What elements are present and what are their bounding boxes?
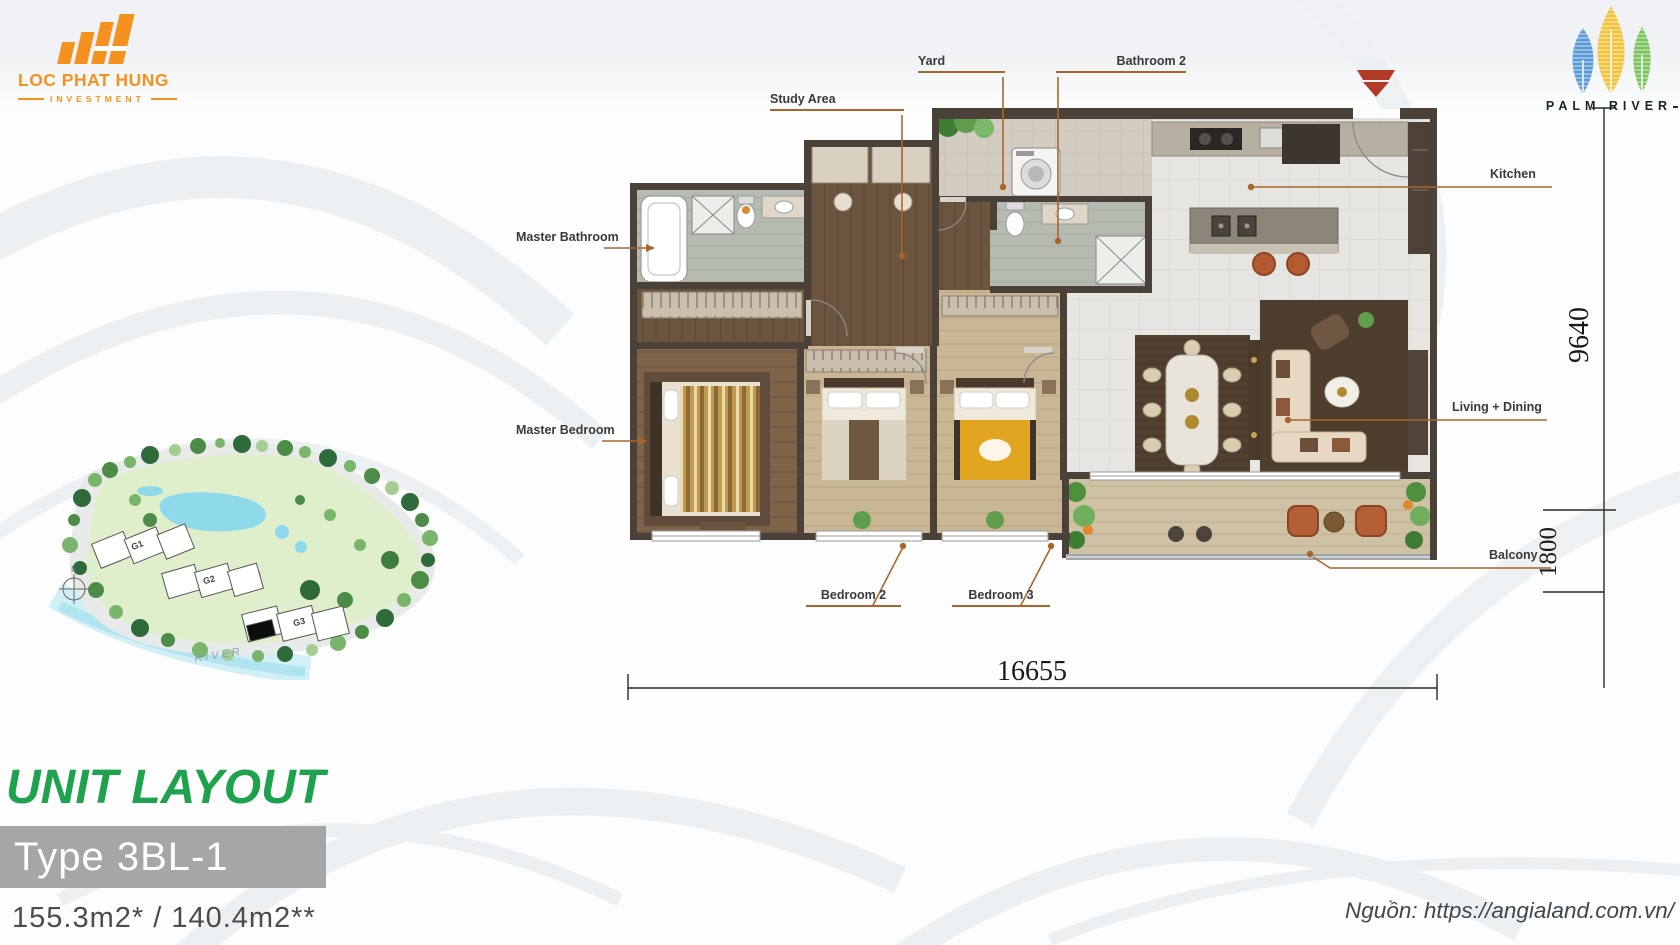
label-balcony: Balcony (1489, 548, 1538, 562)
label-bathroom-2: Bathroom 2 (1056, 54, 1186, 73)
compass-n: N (71, 565, 77, 574)
tree-icon (233, 435, 251, 453)
tree-icon (319, 449, 337, 467)
tree-icon (295, 495, 305, 505)
project-logo-icon (1535, 0, 1680, 100)
label-master-bedroom: Master Bedroom (516, 423, 615, 437)
tree-icon (401, 493, 419, 511)
tree-icon (252, 650, 264, 662)
subtitle-dash-left (18, 98, 44, 100)
tree-icon (73, 489, 91, 507)
source-credit: Nguồn: https://angialand.com.vn/ (1345, 898, 1674, 924)
tree-icon (381, 551, 399, 569)
tree-icon (337, 592, 353, 608)
label-living-dining: Living + Dining (1452, 400, 1542, 414)
palm-leaves-icon (1572, 6, 1650, 94)
tree-icon (169, 444, 181, 456)
dim-balcony-depth: 1800 (1535, 527, 1562, 577)
tree-icon (397, 593, 411, 607)
tree-icon (299, 446, 311, 458)
developer-subtitle: INVESTMENT (50, 94, 145, 104)
tree-icon (277, 646, 293, 662)
tree-icon (277, 440, 293, 456)
tree-icon (161, 633, 175, 647)
dim-width: 16655 (997, 656, 1067, 687)
unit-area: 155.3m2* / 140.4m2** (12, 902, 316, 935)
tree-icon (415, 513, 429, 527)
developer-logo: LOC PHAT HUNG INVESTMENT (18, 8, 188, 104)
unit-type-badge: Type 3BL-1 (0, 826, 326, 888)
dim-depth: 9640 (1564, 307, 1595, 363)
floor-plan-rendering: 16655 9640 1800 (440, 40, 1680, 700)
site-plan-map: G1 G2 G3 N RIVER (30, 415, 460, 680)
label-bedroom-3: Bedroom 3 (952, 588, 1050, 607)
label-master-bathroom: Master Bathroom (516, 230, 619, 244)
tree-icon (376, 609, 394, 627)
tree-icon (88, 473, 102, 487)
tree-icon (68, 514, 80, 526)
label-yard: Yard (918, 54, 1005, 73)
tree-icon (422, 530, 438, 546)
tree-icon (364, 468, 380, 484)
tree-icon (190, 438, 206, 454)
subtitle-dash-right (151, 98, 177, 100)
tree-icon (354, 539, 366, 551)
unit-type-text: Type 3BL-1 (0, 826, 326, 888)
tree-icon (215, 438, 225, 448)
developer-name: LOC PHAT HUNG (18, 70, 188, 91)
tree-icon (344, 460, 356, 472)
tree-icon (143, 513, 157, 527)
tree-icon (411, 571, 429, 589)
tree-icon (300, 580, 320, 600)
tree-icon (109, 605, 123, 619)
tree-icon (355, 625, 369, 639)
tree-icon (385, 481, 399, 495)
tree-icon (129, 494, 141, 506)
tree-icon (141, 446, 159, 464)
developer-subtitle-row: INVESTMENT (18, 94, 188, 104)
page-title: UNIT LAYOUT (6, 760, 325, 815)
tree-icon (131, 619, 149, 637)
tree-icon (324, 509, 336, 521)
tree-icon (421, 553, 435, 567)
developer-logo-icon (18, 8, 188, 70)
tree-icon (102, 462, 118, 478)
tree-icon (124, 456, 136, 468)
tree-icon (306, 644, 318, 656)
label-bedroom-2: Bedroom 2 (806, 588, 901, 607)
tree-icon (88, 582, 104, 598)
label-study-area: Study Area (770, 92, 904, 111)
slide: LOC PHAT HUNG INVESTMENT PALM RIVER (0, 0, 1680, 945)
label-kitchen: Kitchen (1490, 167, 1536, 181)
tree-icon (62, 537, 78, 553)
entry-arrow-icon (1357, 70, 1395, 97)
tree-icon (256, 440, 268, 452)
